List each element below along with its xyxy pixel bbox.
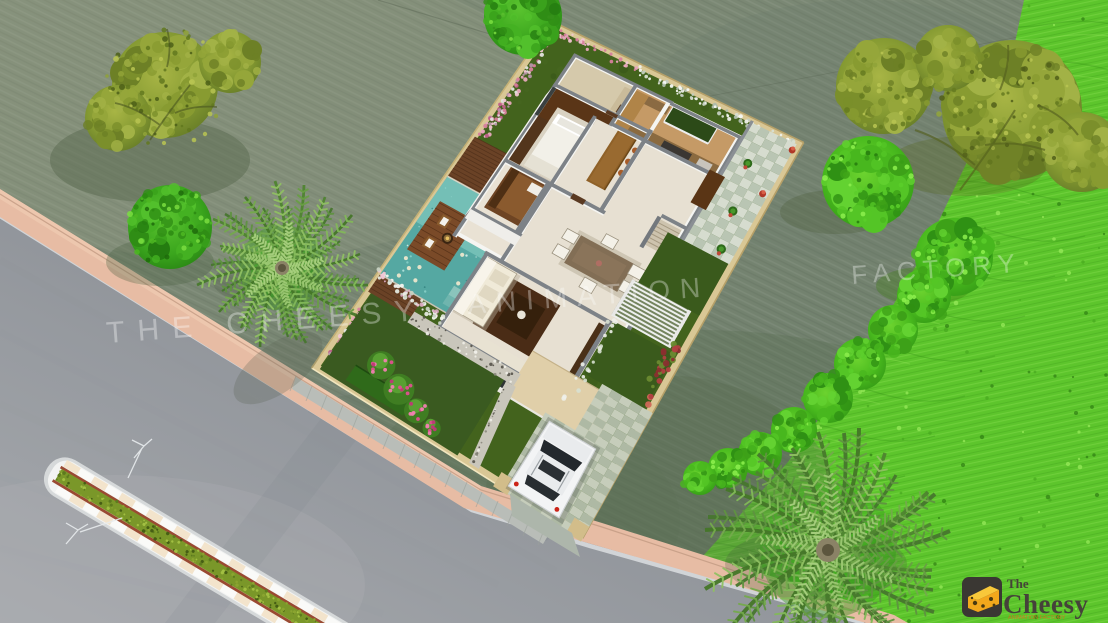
- svg-text:ANIMATION FACTORY: ANIMATION FACTORY: [1008, 615, 1066, 621]
